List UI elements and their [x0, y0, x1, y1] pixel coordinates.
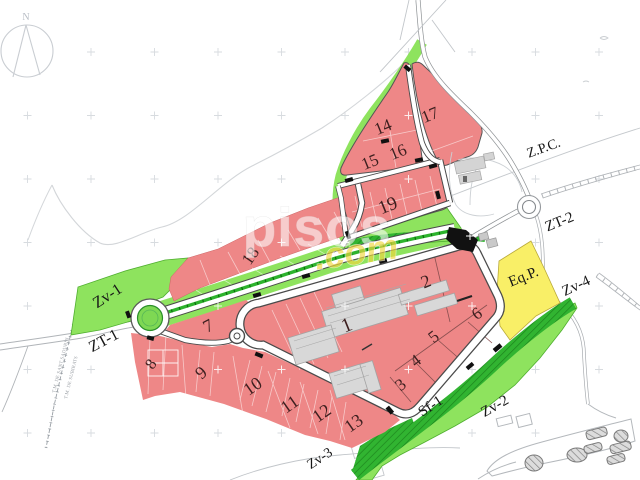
svg-text:N: N — [22, 12, 29, 23]
